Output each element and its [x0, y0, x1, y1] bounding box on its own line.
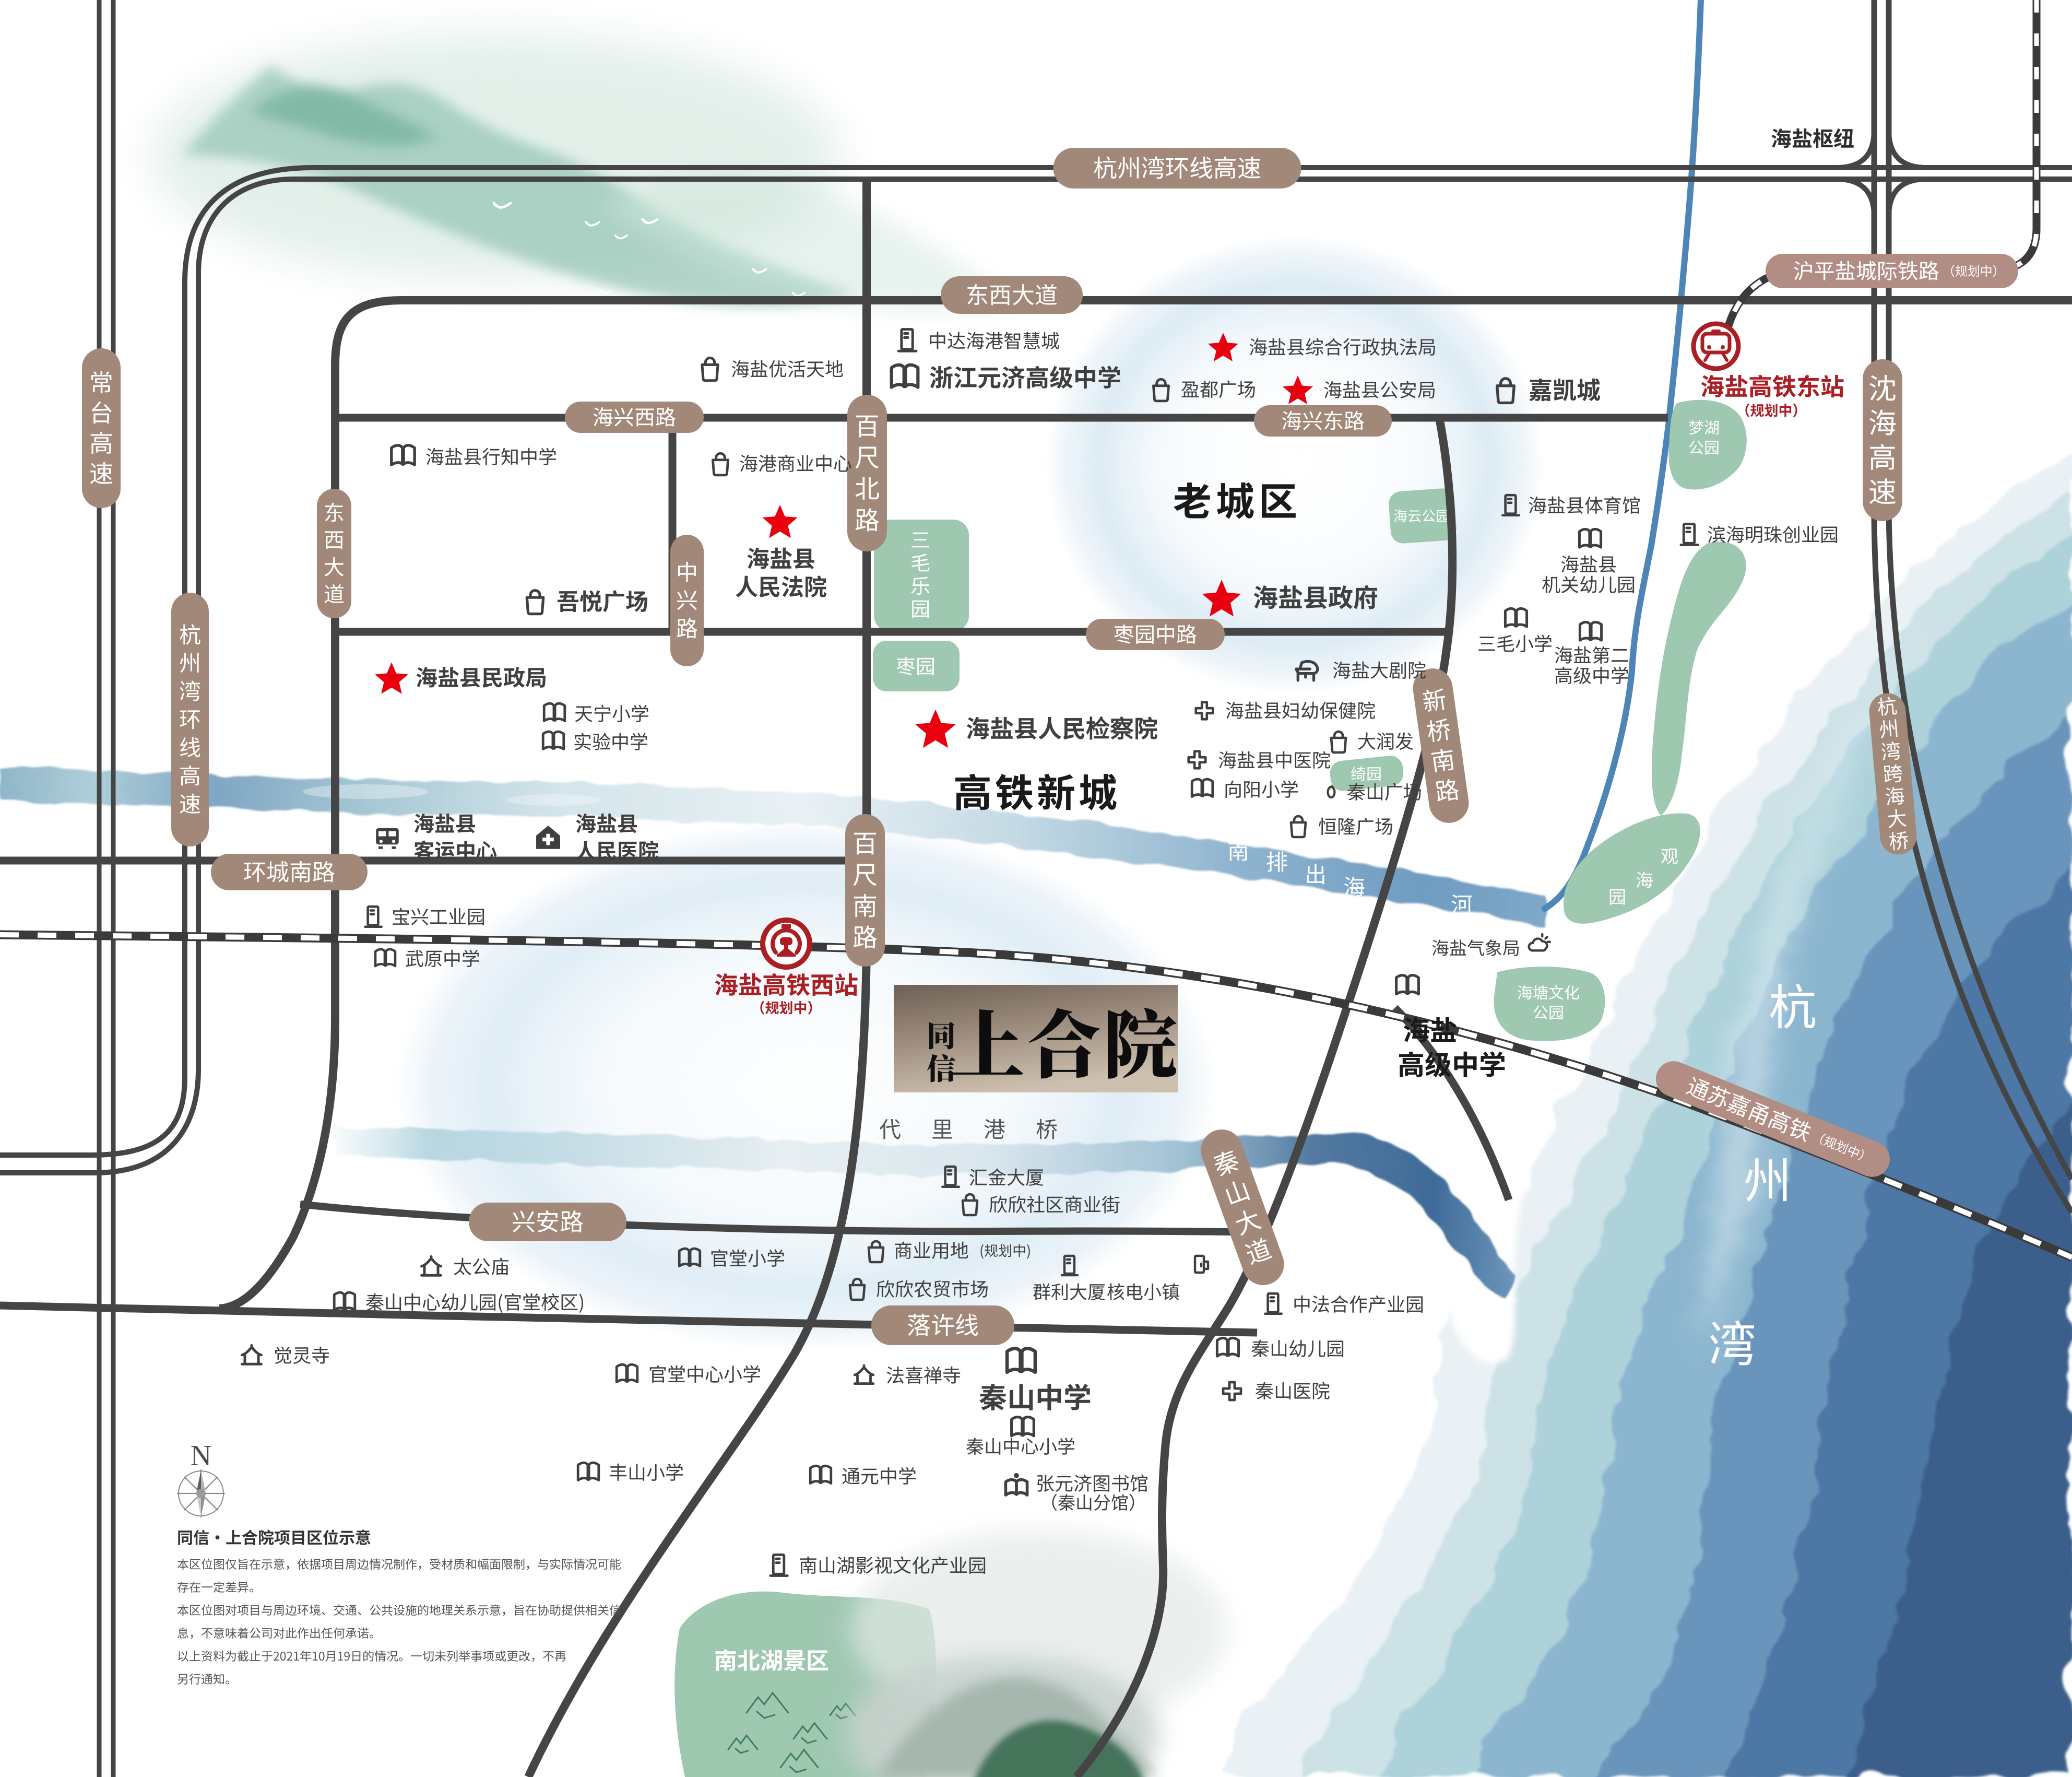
svg-text:南山湖影视文化产业园: 南山湖影视文化产业园 — [799, 1551, 987, 1578]
svg-text:湾: 湾 — [179, 674, 201, 706]
svg-text:通元中学: 通元中学 — [842, 1462, 917, 1489]
svg-text:机关幼儿园: 机关幼儿园 — [1542, 570, 1636, 597]
svg-text:线: 线 — [179, 731, 201, 762]
svg-text:杭: 杭 — [1769, 969, 1817, 1039]
svg-text:路: 路 — [853, 917, 878, 954]
svg-text:海盐县民政局: 海盐县民政局 — [416, 661, 547, 692]
svg-text:湾: 湾 — [1708, 1306, 1756, 1375]
svg-text:人民医院: 人民医院 — [575, 834, 659, 865]
svg-text:出: 出 — [1305, 857, 1327, 889]
svg-text:海盐县中医院: 海盐县中医院 — [1218, 746, 1331, 773]
svg-text:海盐高铁东站: 海盐高铁东站 — [1700, 368, 1844, 403]
svg-text:中达海港智慧城: 中达海港智慧城 — [928, 326, 1060, 354]
svg-text:桥: 桥 — [1888, 825, 1910, 855]
svg-text:法喜禅寺: 法喜禅寺 — [886, 1361, 961, 1388]
svg-text:浙江元济高级中学: 浙江元济高级中学 — [929, 359, 1121, 394]
svg-text:海盐: 海盐 — [1403, 1009, 1457, 1048]
svg-text:南北湖景区: 南北湖景区 — [714, 1642, 829, 1676]
svg-text:州: 州 — [1744, 1143, 1792, 1212]
svg-text:高: 高 — [89, 425, 113, 460]
svg-text:观: 观 — [1661, 842, 1678, 868]
svg-text:秦山中心小学: 秦山中心小学 — [966, 1432, 1075, 1459]
svg-text:海盐县体育馆: 海盐县体育馆 — [1528, 491, 1641, 518]
svg-text:园: 园 — [910, 593, 930, 622]
svg-text:滨海明珠创业园: 滨海明珠创业园 — [1707, 520, 1839, 547]
svg-text:人民法院: 人民法院 — [735, 569, 827, 602]
svg-text:环城南路: 环城南路 — [243, 854, 335, 887]
svg-text:路: 路 — [1432, 771, 1461, 808]
svg-text:环: 环 — [179, 702, 201, 734]
svg-text:里: 里 — [931, 1112, 953, 1144]
svg-text:海兴西路: 海兴西路 — [593, 401, 676, 431]
svg-text:海云公园: 海云公园 — [1393, 505, 1450, 525]
svg-text:觉灵寺: 觉灵寺 — [274, 1341, 330, 1368]
svg-text:存在一定差异。: 存在一定差异。 — [177, 1578, 261, 1595]
svg-text:海兴东路: 海兴东路 — [1281, 404, 1365, 434]
svg-text:高铁新城: 高铁新城 — [953, 762, 1120, 818]
svg-text:高级中学: 高级中学 — [1398, 1043, 1506, 1082]
svg-text:州: 州 — [179, 646, 201, 678]
svg-text:中法合作产业园: 中法合作产业园 — [1293, 1290, 1424, 1317]
svg-text:实验中学: 实验中学 — [573, 727, 648, 755]
svg-text:港: 港 — [984, 1112, 1005, 1144]
svg-text:（规划中）: （规划中） — [1943, 261, 2005, 279]
svg-text:大润发: 大润发 — [1357, 727, 1414, 754]
svg-text:天宁小学: 天宁小学 — [574, 699, 649, 726]
svg-text:代: 代 — [879, 1112, 901, 1144]
svg-text:（规划中）: （规划中） — [1736, 399, 1807, 420]
svg-text:嘉凯城: 嘉凯城 — [1529, 372, 1601, 406]
svg-text:海盐县综合行政执法局: 海盐县综合行政执法局 — [1249, 333, 1437, 360]
svg-text:枣园: 枣园 — [896, 651, 936, 679]
svg-text:海盐优活天地: 海盐优活天地 — [731, 355, 844, 382]
svg-text:兴: 兴 — [676, 583, 698, 615]
svg-text:海港商业中心: 海港商业中心 — [739, 449, 852, 476]
svg-text:园: 园 — [1608, 883, 1626, 909]
svg-text:以上资料为截止于2021年10月19日的情况。一切未列举事项: 以上资料为截止于2021年10月19日的情况。一切未列举事项或更改，不再 — [177, 1646, 566, 1664]
svg-text:宝兴工业园: 宝兴工业园 — [392, 902, 486, 929]
svg-text:海盐县妇幼保健院: 海盐县妇幼保健院 — [1225, 696, 1376, 723]
svg-text:兴安路: 兴安路 — [512, 1204, 584, 1238]
svg-text:(规划中): (规划中) — [979, 1240, 1031, 1260]
svg-text:（规划中）: （规划中） — [751, 997, 822, 1017]
svg-text:商业用地: 商业用地 — [894, 1236, 969, 1263]
svg-text:海盐县人民检察院: 海盐县人民检察院 — [966, 710, 1158, 745]
svg-text:本区位图对项目与周边环境、交通、公共设施的地理关系示意，旨在: 本区位图对项目与周边环境、交通、公共设施的地理关系示意，旨在协助提供相关信 — [177, 1601, 621, 1618]
svg-text:桥: 桥 — [1036, 1112, 1058, 1144]
svg-text:路: 路 — [855, 500, 880, 536]
svg-text:官堂小学: 官堂小学 — [710, 1244, 785, 1271]
svg-text:核电小镇: 核电小镇 — [1107, 1278, 1180, 1304]
svg-text:河: 河 — [1451, 888, 1473, 920]
svg-text:东: 东 — [324, 496, 345, 526]
svg-text:恒隆广场: 恒隆广场 — [1318, 812, 1393, 839]
svg-text:海: 海 — [1636, 866, 1653, 892]
svg-text:秦山中心幼儿园(官堂校区): 秦山中心幼儿园(官堂校区) — [365, 1288, 585, 1315]
svg-text:海盐大剧院: 海盐大剧院 — [1332, 656, 1426, 683]
svg-text:西: 西 — [324, 523, 345, 554]
svg-text:向阳小学: 向阳小学 — [1224, 775, 1299, 802]
svg-text:秦山医院: 秦山医院 — [1255, 1376, 1330, 1404]
svg-text:速: 速 — [1868, 469, 1897, 510]
svg-text:道: 道 — [324, 578, 345, 608]
svg-text:海盐县公安局: 海盐县公安局 — [1323, 375, 1436, 403]
svg-text:速: 速 — [179, 787, 201, 819]
svg-text:客运中心: 客运中心 — [413, 834, 497, 865]
svg-text:路: 路 — [676, 611, 698, 643]
svg-text:高: 高 — [179, 759, 201, 791]
svg-text:枣园中路: 枣园中路 — [1114, 618, 1197, 648]
svg-text:老城区: 老城区 — [1173, 471, 1301, 527]
svg-text:秦山广场: 秦山广场 — [1347, 778, 1422, 805]
svg-text:本区位图仅旨在示意，依据项目周边情况制作，受材质和幅面限制，: 本区位图仅旨在示意，依据项目周边情况制作，受材质和幅面限制，与实际情况可能 — [177, 1555, 621, 1572]
svg-text:吾悦广场: 吾悦广场 — [557, 583, 648, 617]
svg-text:海盐县政府: 海盐县政府 — [1253, 578, 1378, 614]
svg-text:汇金大厦: 汇金大厦 — [969, 1163, 1044, 1190]
svg-text:欣欣农贸市场: 欣欣农贸市场 — [876, 1275, 989, 1302]
svg-text:盈都广场: 盈都广场 — [1181, 375, 1256, 402]
svg-text:海: 海 — [1343, 870, 1365, 902]
svg-text:N: N — [191, 1440, 211, 1472]
svg-text:上合院: 上合院 — [951, 986, 1179, 1093]
svg-text:排: 排 — [1266, 845, 1288, 877]
svg-text:速: 速 — [89, 455, 113, 490]
svg-text:群利大厦: 群利大厦 — [1033, 1278, 1106, 1304]
svg-text:欣欣社区商业街: 欣欣社区商业街 — [989, 1190, 1120, 1217]
svg-text:（秦山分馆）: （秦山分馆） — [1040, 1489, 1146, 1514]
svg-text:东西大道: 东西大道 — [966, 277, 1058, 310]
svg-text:中: 中 — [676, 555, 698, 587]
svg-text:公园: 公园 — [1533, 1000, 1564, 1023]
svg-text:海盐县行知中学: 海盐县行知中学 — [425, 442, 557, 469]
svg-text:落许线: 落许线 — [907, 1307, 979, 1341]
svg-text:杭州湾环线高速: 杭州湾环线高速 — [1093, 150, 1261, 184]
svg-text:沪平盐城际铁路: 沪平盐城际铁路 — [1793, 254, 1939, 285]
svg-text:大: 大 — [324, 550, 345, 581]
svg-text:海盐枢纽: 海盐枢纽 — [1771, 122, 1854, 152]
svg-text:丰山小学: 丰山小学 — [609, 1458, 684, 1485]
svg-text:海盐高铁西站: 海盐高铁西站 — [714, 967, 858, 1001]
svg-text:台: 台 — [89, 395, 113, 429]
svg-text:武原中学: 武原中学 — [405, 944, 480, 971]
svg-text:息，不意味着公司对此作出任何承诺。: 息，不意味着公司对此作出任何承诺。 — [177, 1623, 381, 1641]
svg-text:高级中学: 高级中学 — [1554, 661, 1629, 688]
svg-text:公园: 公园 — [1688, 435, 1720, 458]
svg-text:同信·上合院项目区位示意: 同信·上合院项目区位示意 — [177, 1525, 371, 1548]
svg-text:官堂中心小学: 官堂中心小学 — [648, 1360, 761, 1387]
svg-text:另行通知。: 另行通知。 — [177, 1669, 237, 1687]
svg-text:杭: 杭 — [179, 618, 201, 650]
svg-text:太公庙: 太公庙 — [453, 1252, 510, 1279]
svg-text:秦山中学: 秦山中学 — [979, 1375, 1092, 1416]
svg-text:海盐县: 海盐县 — [575, 807, 638, 838]
svg-text:秦山幼儿园: 秦山幼儿园 — [1251, 1334, 1345, 1361]
svg-text:常: 常 — [89, 364, 113, 399]
svg-text:海盐气象局: 海盐气象局 — [1431, 934, 1520, 960]
svg-text:三毛小学: 三毛小学 — [1477, 629, 1553, 656]
svg-text:南: 南 — [1227, 834, 1249, 866]
svg-text:海盐县: 海盐县 — [413, 807, 476, 838]
